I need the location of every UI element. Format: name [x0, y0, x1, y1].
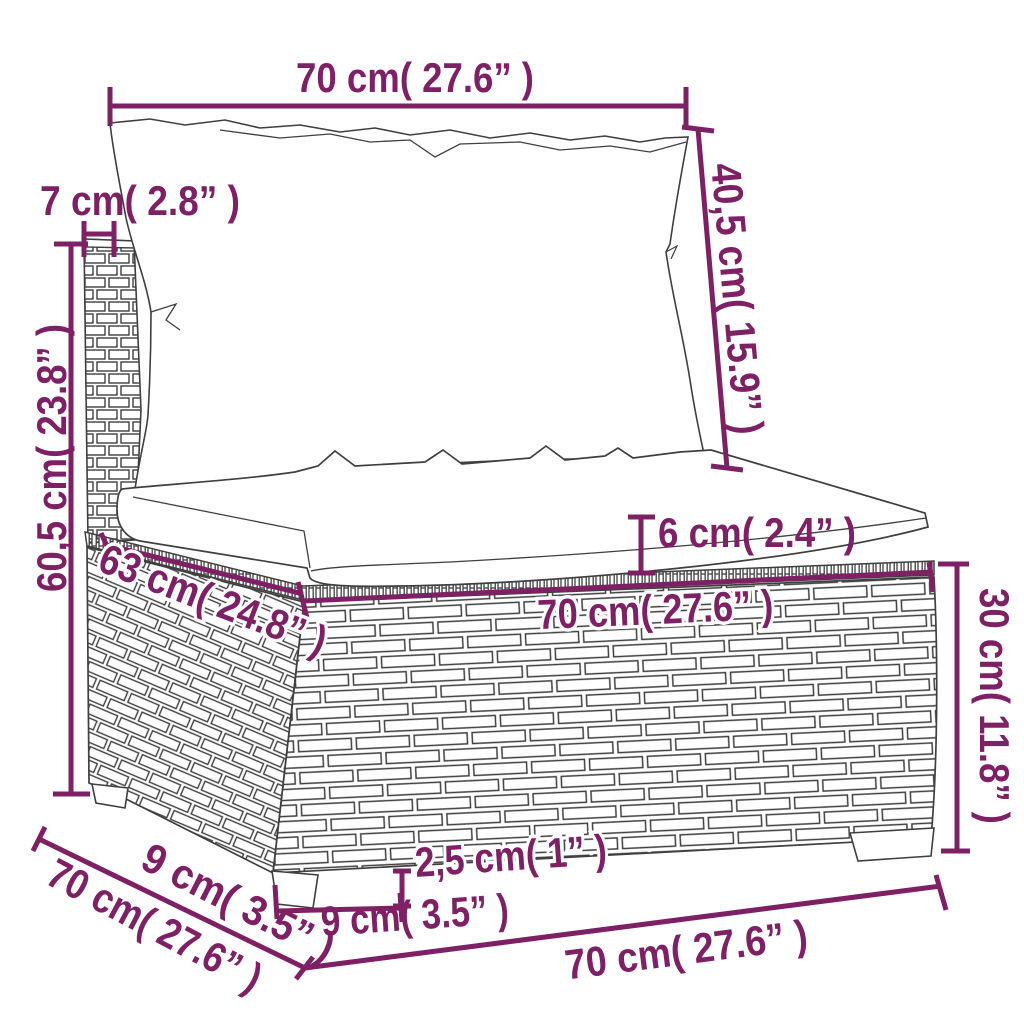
svg-text:7 cm( 2.8” ): 7 cm( 2.8” ) — [40, 177, 240, 224]
svg-text:30 cm( 11.8” ): 30 cm( 11.8” ) — [971, 588, 1018, 824]
svg-text:70 cm( 27.6” ): 70 cm( 27.6” ) — [296, 54, 534, 101]
svg-text:6 cm( 2.4” ): 6 cm( 2.4” ) — [658, 509, 856, 556]
svg-text:60,5 cm( 23.8” ): 60,5 cm( 23.8” ) — [28, 324, 75, 592]
